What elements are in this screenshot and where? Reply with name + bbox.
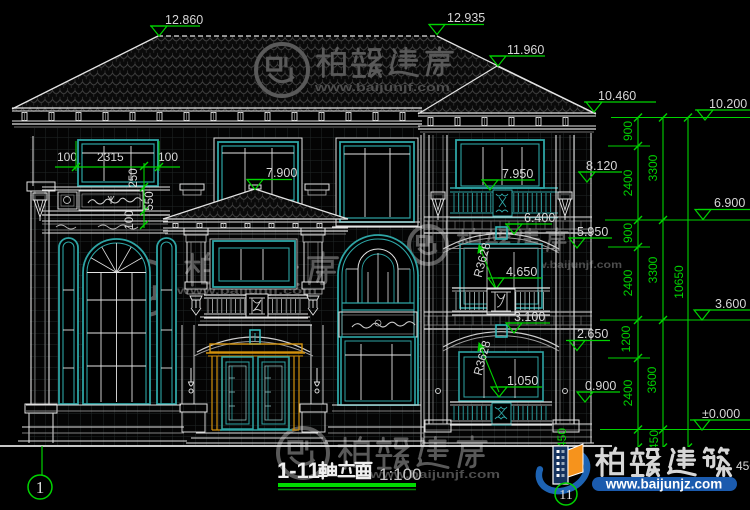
svg-text:12.860: 12.860 [165,13,203,27]
svg-text:1: 1 [36,478,45,497]
svg-text:450: 450 [647,430,661,450]
svg-text:450: 450 [736,459,750,473]
svg-text:10650: 10650 [672,265,686,299]
svg-text:100: 100 [57,150,77,164]
svg-text:3600: 3600 [645,366,659,393]
svg-text:2400: 2400 [621,269,635,296]
svg-text:www.baijunjf.com: www.baijunjf.com [314,82,451,94]
svg-text:900: 900 [621,223,635,243]
svg-text:2.650: 2.650 [577,327,608,341]
svg-text:4.650: 4.650 [506,265,537,279]
svg-text:2400: 2400 [621,379,635,406]
svg-text:5.950: 5.950 [577,225,608,239]
svg-text:0.900: 0.900 [585,379,616,393]
svg-text:100: 100 [158,150,178,164]
svg-text:100: 100 [124,210,136,229]
svg-text:11.960: 11.960 [507,43,544,57]
svg-text:7.950: 7.950 [502,167,533,181]
svg-text:1-11: 1-11 [277,458,320,483]
svg-text:550: 550 [144,191,156,210]
svg-text:7.900: 7.900 [266,166,297,180]
svg-text:12.935: 12.935 [447,11,485,25]
svg-text:2315: 2315 [97,150,124,164]
svg-text:10.200: 10.200 [709,97,747,111]
svg-text:11: 11 [559,488,572,503]
svg-text:3.600: 3.600 [715,297,746,311]
svg-text:1.050: 1.050 [507,374,538,388]
svg-text:3300: 3300 [646,256,660,283]
svg-text:±0.000: ±0.000 [702,407,740,421]
svg-text:6.400: 6.400 [524,211,555,225]
svg-text:3.100: 3.100 [514,310,545,324]
svg-text:3300: 3300 [646,154,660,181]
svg-text:250: 250 [128,168,140,187]
svg-text:450: 450 [555,428,569,448]
svg-text:1200: 1200 [619,325,633,352]
svg-text:10.460: 10.460 [598,89,636,103]
svg-text:www.baijunjz.com: www.baijunjz.com [605,477,723,492]
svg-text:1:100: 1:100 [379,465,422,484]
svg-text:2400: 2400 [621,169,635,196]
svg-text:6.900: 6.900 [714,196,745,210]
svg-text:900: 900 [621,121,635,141]
svg-text:8.120: 8.120 [586,159,617,173]
